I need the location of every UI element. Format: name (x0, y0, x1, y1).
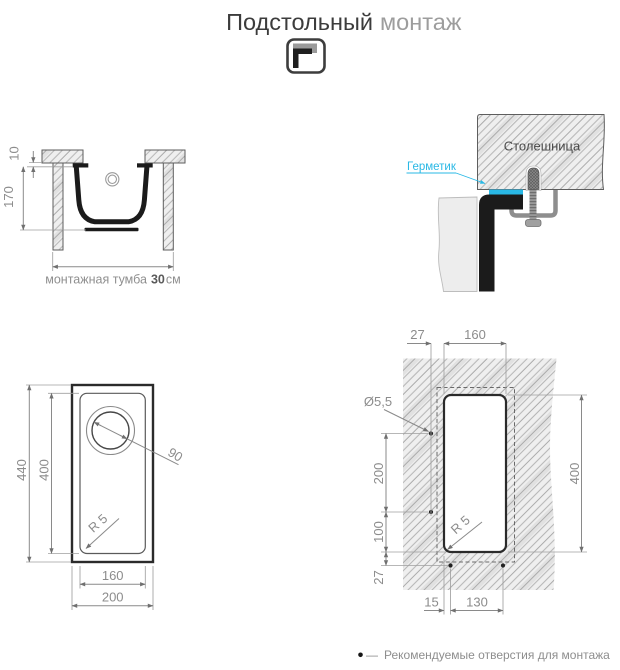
page-title: Подстольный (226, 9, 373, 35)
dim-outer-width-label: 200 (102, 590, 124, 605)
top-view-drawing: 440 400 160 200 90 R 5 (14, 385, 185, 610)
legend-text: Рекомендуемые отверстия для монтажа (384, 648, 610, 662)
dim-holes-spacing-bottom-label: 130 (466, 595, 488, 610)
dim-cutout-height-label: 400 (567, 463, 582, 485)
dim-hole-spacing-left-label: 200 (371, 463, 386, 485)
installation-sheet: Подстольный монтаж 10 170 (0, 0, 620, 670)
dim-depth-label: 170 (1, 186, 16, 208)
legend-hole-bullet (358, 653, 363, 658)
dim-rim-gap-label: 10 (7, 146, 22, 160)
threaded-stud (530, 190, 537, 222)
dim-hole-offset-top-label: 27 (410, 327, 424, 342)
page-subtitle: монтаж (380, 9, 462, 35)
cabinet-caption: монтажная тумба30см (45, 273, 180, 287)
countertop-slab-right (145, 150, 185, 163)
sealant-callout: Герметик (407, 161, 486, 184)
cabinet-side-left (53, 163, 63, 250)
countertop-label: Столешница (504, 139, 581, 154)
undermount-icon (288, 40, 325, 73)
dim-corner-to-holes-label: 27 (371, 570, 386, 584)
cabinet-side-right (163, 163, 173, 250)
countertop-slab-left (42, 150, 83, 163)
dim-inner-width-label: 160 (102, 568, 124, 583)
sealant-label: Герметик (407, 161, 457, 173)
mounting-hole (448, 563, 452, 567)
sink-rim-section (479, 195, 523, 292)
dim-hole-to-corner-label: 100 (371, 521, 386, 543)
sink-bowl-profile (73, 163, 153, 231)
dim-inner-height-label: 400 (37, 459, 52, 481)
dim-cutout-width-label: 160 (464, 327, 486, 342)
anchor-sleeve (528, 168, 539, 190)
dim-edge-to-hole-label: 15 (424, 595, 438, 610)
sealant-strip (489, 190, 523, 196)
cross-section-dimensions: 10 170 монтажная тумба30см (1, 146, 181, 286)
cutout-template-drawing: 27 160 Ø5,5 200 100 27 400 15 130 R 5 (364, 327, 587, 615)
clamp-nut (526, 220, 542, 227)
dim-hole-diameter-label: Ø5,5 (364, 394, 392, 409)
mounting-detail-drawing: Столешница Герметик (407, 115, 605, 292)
legend-dash: — (366, 648, 378, 662)
dim-drain-diameter-label: 90 (165, 444, 185, 464)
legend: — Рекомендуемые отверстия для монтажа (358, 648, 610, 662)
dim-outer-height-label: 440 (14, 459, 29, 481)
cabinet-panel-break (438, 197, 477, 292)
cross-section-drawing: 10 170 монтажная тумба30см (1, 146, 185, 286)
drawing-canvas: Подстольный монтаж 10 170 (0, 0, 620, 670)
mounting-hole (501, 563, 505, 567)
